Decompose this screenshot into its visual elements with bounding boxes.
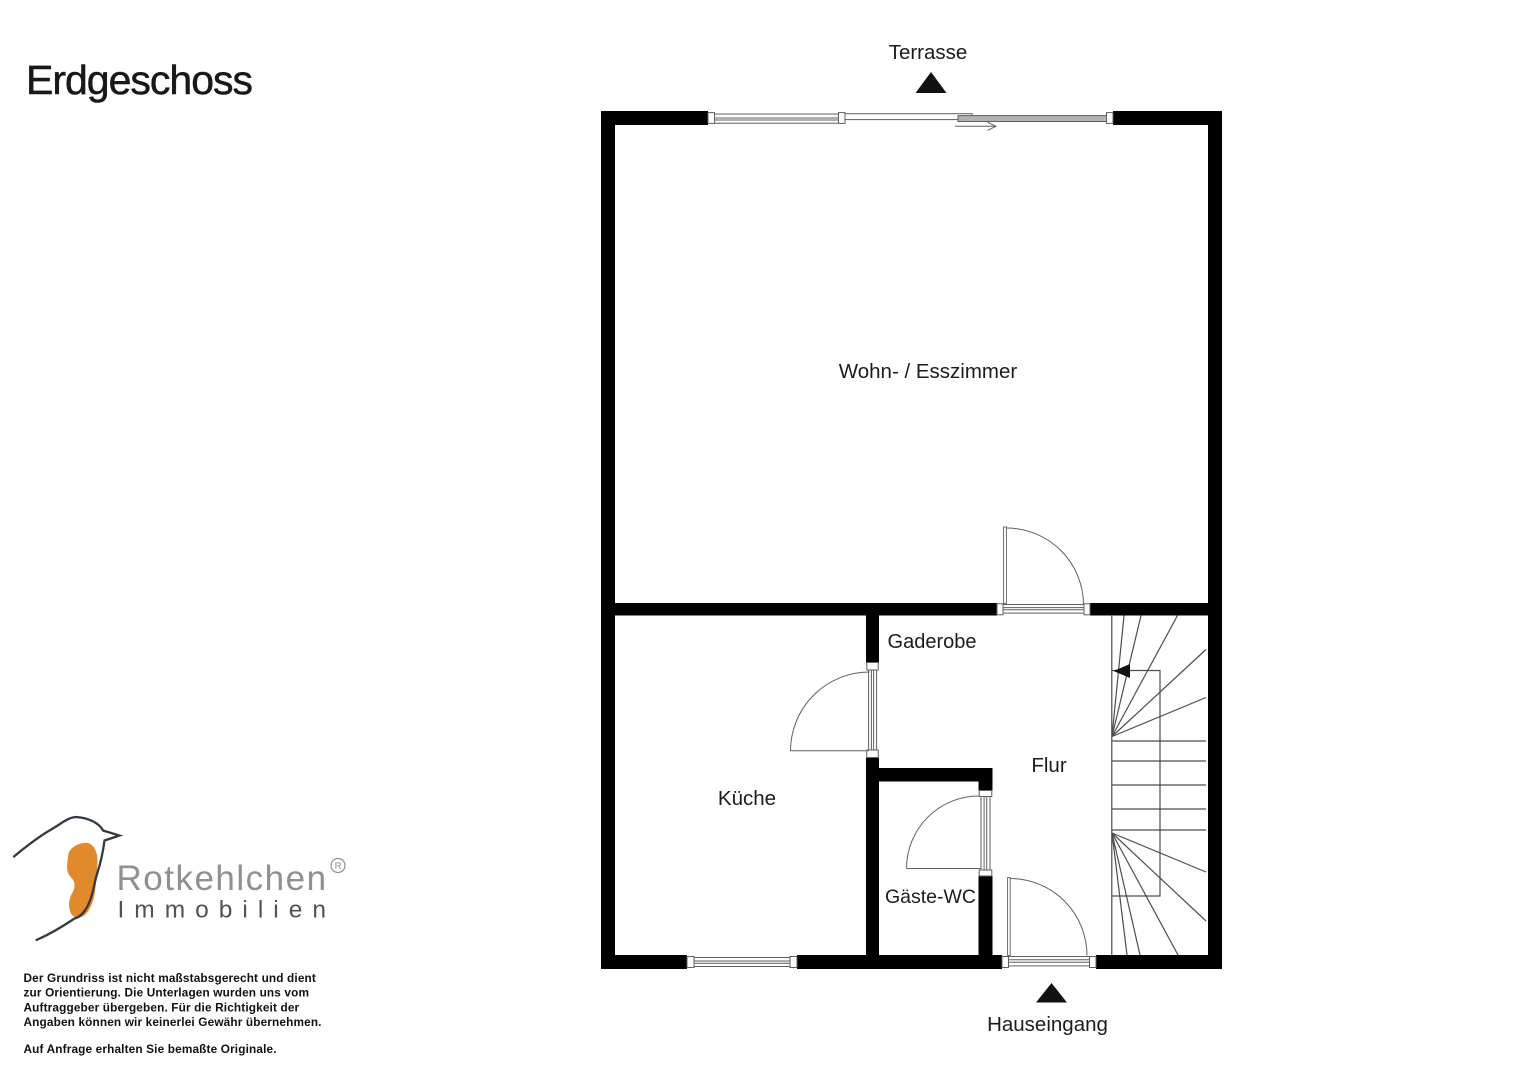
svg-text:Hauseingang: Hauseingang xyxy=(987,1013,1108,1036)
svg-text:Immobilien: Immobilien xyxy=(118,897,336,924)
svg-text:Der Grundriss ist nicht maßsta: Der Grundriss ist nicht maßstabsgerecht … xyxy=(24,971,317,985)
svg-text:Rotkehlchen: Rotkehlchen xyxy=(117,859,328,898)
svg-text:Erdgeschoss: Erdgeschoss xyxy=(26,57,253,103)
svg-text:R: R xyxy=(335,861,342,872)
svg-text:zur Orientierung. Die Unterlag: zur Orientierung. Die Unterlagen wurden … xyxy=(24,986,310,1000)
svg-text:Gaderobe: Gaderobe xyxy=(888,631,977,653)
svg-text:Küche: Küche xyxy=(718,787,776,810)
svg-text:Angaben können wir keinerlei G: Angaben können wir keinerlei Gewähr über… xyxy=(24,1015,322,1029)
svg-text:Gäste-WC: Gäste-WC xyxy=(885,886,976,908)
svg-text:Terrasse: Terrasse xyxy=(889,41,968,64)
svg-text:Auf Anfrage erhalten Sie bemaß: Auf Anfrage erhalten Sie bemaßte Origina… xyxy=(24,1042,277,1056)
svg-text:Flur: Flur xyxy=(1031,754,1066,777)
svg-text:Auftraggeber übergeben. Für di: Auftraggeber übergeben. Für die Richtigk… xyxy=(24,1000,300,1014)
svg-text:Wohn- / Esszimmer: Wohn- / Esszimmer xyxy=(839,360,1018,383)
